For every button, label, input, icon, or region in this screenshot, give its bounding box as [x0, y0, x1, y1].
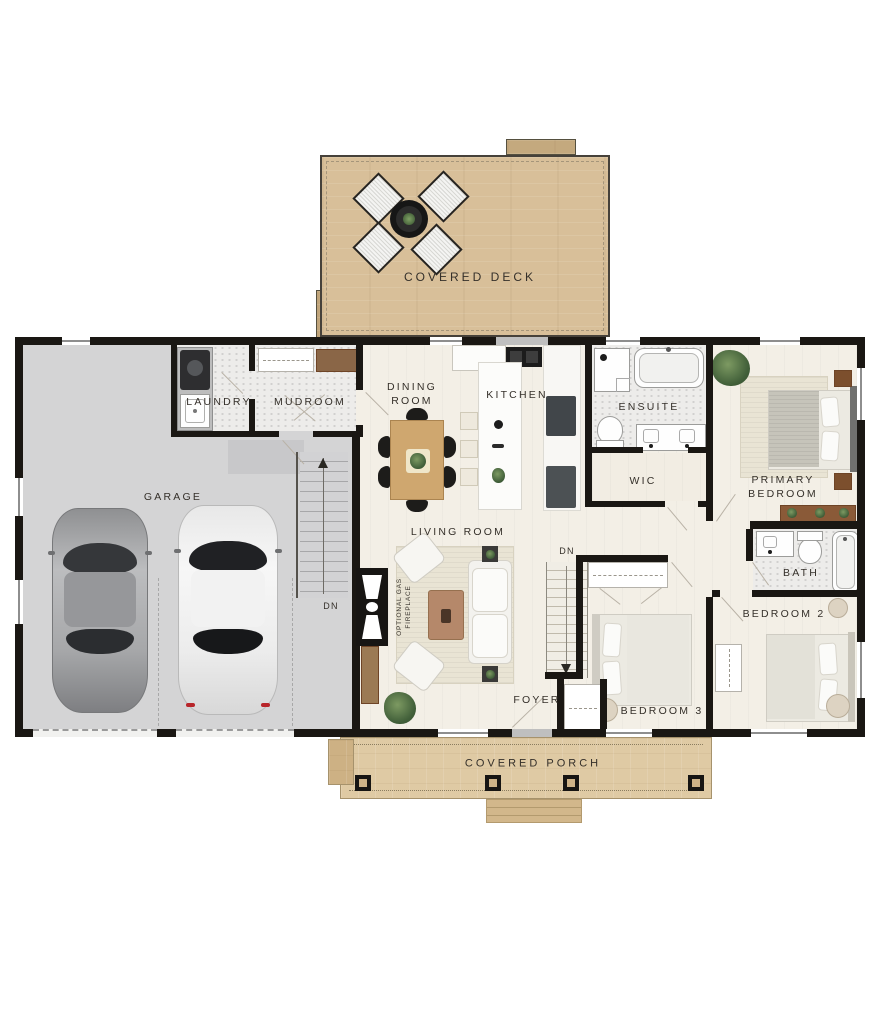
patio-table-icon: [390, 200, 428, 238]
island-faucet-icon: [492, 444, 504, 448]
wall-kitchen-ensuite: [585, 345, 592, 507]
label-kitchen: KITCHEN: [486, 388, 548, 402]
front-door: [512, 729, 552, 737]
bath-tub-icon: [832, 531, 859, 593]
garage-stairs: [300, 452, 348, 598]
wall-outer-left: [15, 337, 23, 737]
label-ensuite: ENSUITE: [619, 400, 680, 414]
primary-dresser-icon: [780, 505, 856, 522]
bath-toilet-tank: [797, 531, 823, 541]
dining-chair-icon: [378, 436, 390, 458]
side-table-icon: [482, 546, 498, 562]
wall-foyer-closet-right: [600, 679, 607, 729]
label-optional-fireplace: OPTIONAL GAS FIREPLACE: [395, 578, 413, 636]
parking-bay-line: [158, 578, 159, 726]
label-laundry: LAUNDRY: [186, 395, 251, 409]
porch-front-steps: [486, 799, 582, 823]
wall-hall-bedroom3: [583, 555, 668, 562]
coffee-table-icon: [428, 590, 464, 640]
deck-door: [496, 337, 548, 345]
porch-post-icon: [688, 775, 704, 791]
car-white-icon: [178, 505, 278, 715]
island-sink-icon: [494, 420, 503, 429]
bedroom3-closet: [588, 562, 668, 588]
bath-toilet-icon: [798, 538, 822, 564]
label-living-room: LIVING ROOM: [411, 525, 505, 539]
bathtub-icon: [634, 348, 704, 388]
wall-ensuite-wic-left: [585, 447, 643, 453]
window-bedroom3-bottom: [606, 729, 652, 737]
label-wic: WIC: [629, 474, 656, 488]
kitchen-island: [478, 362, 522, 510]
wall-mudroom-bottom-left: [171, 431, 279, 437]
porch-side-steps: [328, 739, 354, 785]
wall-laundry-left: [171, 345, 177, 437]
bar-stool-icon: [460, 440, 478, 458]
garage-door-2: [176, 729, 294, 737]
window-dining-top: [430, 337, 462, 345]
primary-plant-icon: [712, 350, 750, 386]
wall-mudroom-right-top: [356, 337, 363, 390]
label-bedroom-3: BEDROOM 3: [621, 704, 704, 718]
porch-post-icon: [563, 775, 579, 791]
window-living-bottom: [438, 729, 488, 737]
label-mudroom: MUDROOM: [274, 395, 346, 409]
wall-stair-bottom: [545, 672, 583, 679]
primary-headboard: [850, 386, 857, 472]
wall-bath-left: [746, 529, 753, 561]
garage-door-1: [33, 729, 157, 737]
label-garage: GARAGE: [144, 490, 202, 504]
window-ensuite-top: [606, 337, 640, 345]
mudroom-bench-icon: [316, 349, 358, 372]
garage-stairs-rail: [296, 452, 298, 598]
sofa-icon: [468, 560, 512, 664]
shower-icon: [594, 348, 630, 392]
dining-chair-icon: [406, 408, 428, 420]
nightstand-icon: [834, 370, 852, 387]
label-covered-porch: COVERED PORCH: [465, 757, 601, 772]
label-primary-bedroom: PRIMARY BEDROOM: [748, 473, 818, 501]
wall-bath-bottom-left: [712, 590, 720, 597]
dining-table-icon: [390, 420, 444, 500]
window-garage-top: [62, 337, 90, 345]
stairs-up-arrow-icon: [318, 458, 328, 468]
pouf-icon: [826, 694, 850, 718]
wall-stair-right: [576, 555, 583, 679]
bar-stool-icon: [460, 468, 478, 486]
wall-laundry-divider-top: [249, 345, 255, 371]
label-bedroom-2: BEDROOM 2: [743, 607, 826, 621]
label-foyer: FOYER: [513, 693, 560, 707]
living-plant-icon: [384, 692, 416, 724]
label-dn-garage: DN: [323, 600, 338, 612]
bedroom3-bed-icon: [592, 614, 692, 706]
window-garage-left-2: [15, 580, 23, 624]
bath-vanity-icon: [756, 531, 794, 557]
wall-wic-bottom-right: [698, 501, 713, 507]
nightstand-icon: [834, 473, 852, 490]
gas-fireplace-icon: [356, 568, 388, 646]
wall-primary-bottom: [750, 521, 865, 529]
side-table-icon: [482, 666, 498, 682]
wall-ensuite-right: [706, 345, 713, 521]
kitchen-appliance-icon: [546, 466, 576, 508]
mudroom-closet: [258, 348, 314, 372]
bar-stool-icon: [460, 412, 478, 430]
parking-bay-line: [292, 578, 293, 726]
floor-plan: COVERED DECK: [0, 0, 885, 1024]
porch-post-icon: [355, 775, 371, 791]
window-bedroom2-bottom: [751, 729, 807, 737]
window-garage-left-1: [15, 478, 23, 516]
washer-dryer-icon: [180, 350, 210, 390]
refrigerator-icon: [546, 396, 576, 436]
primary-bed-icon: [768, 390, 854, 470]
label-covered-deck: COVERED DECK: [404, 269, 536, 285]
wall-mudroom-right-bottom: [356, 425, 363, 437]
car-silver-icon: [52, 508, 148, 713]
foyer-closet: [564, 684, 602, 731]
window-bedroom2-right: [857, 642, 865, 698]
island-plant-icon: [492, 468, 505, 483]
wall-wic-bottom-left: [585, 501, 665, 507]
window-primary-top: [760, 337, 800, 345]
pouf-icon: [828, 598, 848, 618]
window-primary-right: [857, 368, 865, 420]
garage-stairs-centerline: [323, 458, 324, 594]
deck-step-top: [506, 139, 576, 155]
garage-entry-landing: [228, 440, 304, 474]
bedroom2-closet: [715, 644, 742, 692]
wall-bath-bottom-right: [752, 590, 865, 597]
wall-bedroom-divider: [706, 597, 713, 729]
dining-chair-icon: [378, 466, 390, 488]
porch-post-icon: [485, 775, 501, 791]
label-dn-foyer: DN: [559, 545, 574, 557]
label-dining-room: DINING ROOM: [387, 380, 437, 408]
label-bath: BATH: [783, 566, 819, 580]
console-icon: [361, 646, 379, 704]
foyer-stairs-centerline: [566, 566, 567, 674]
